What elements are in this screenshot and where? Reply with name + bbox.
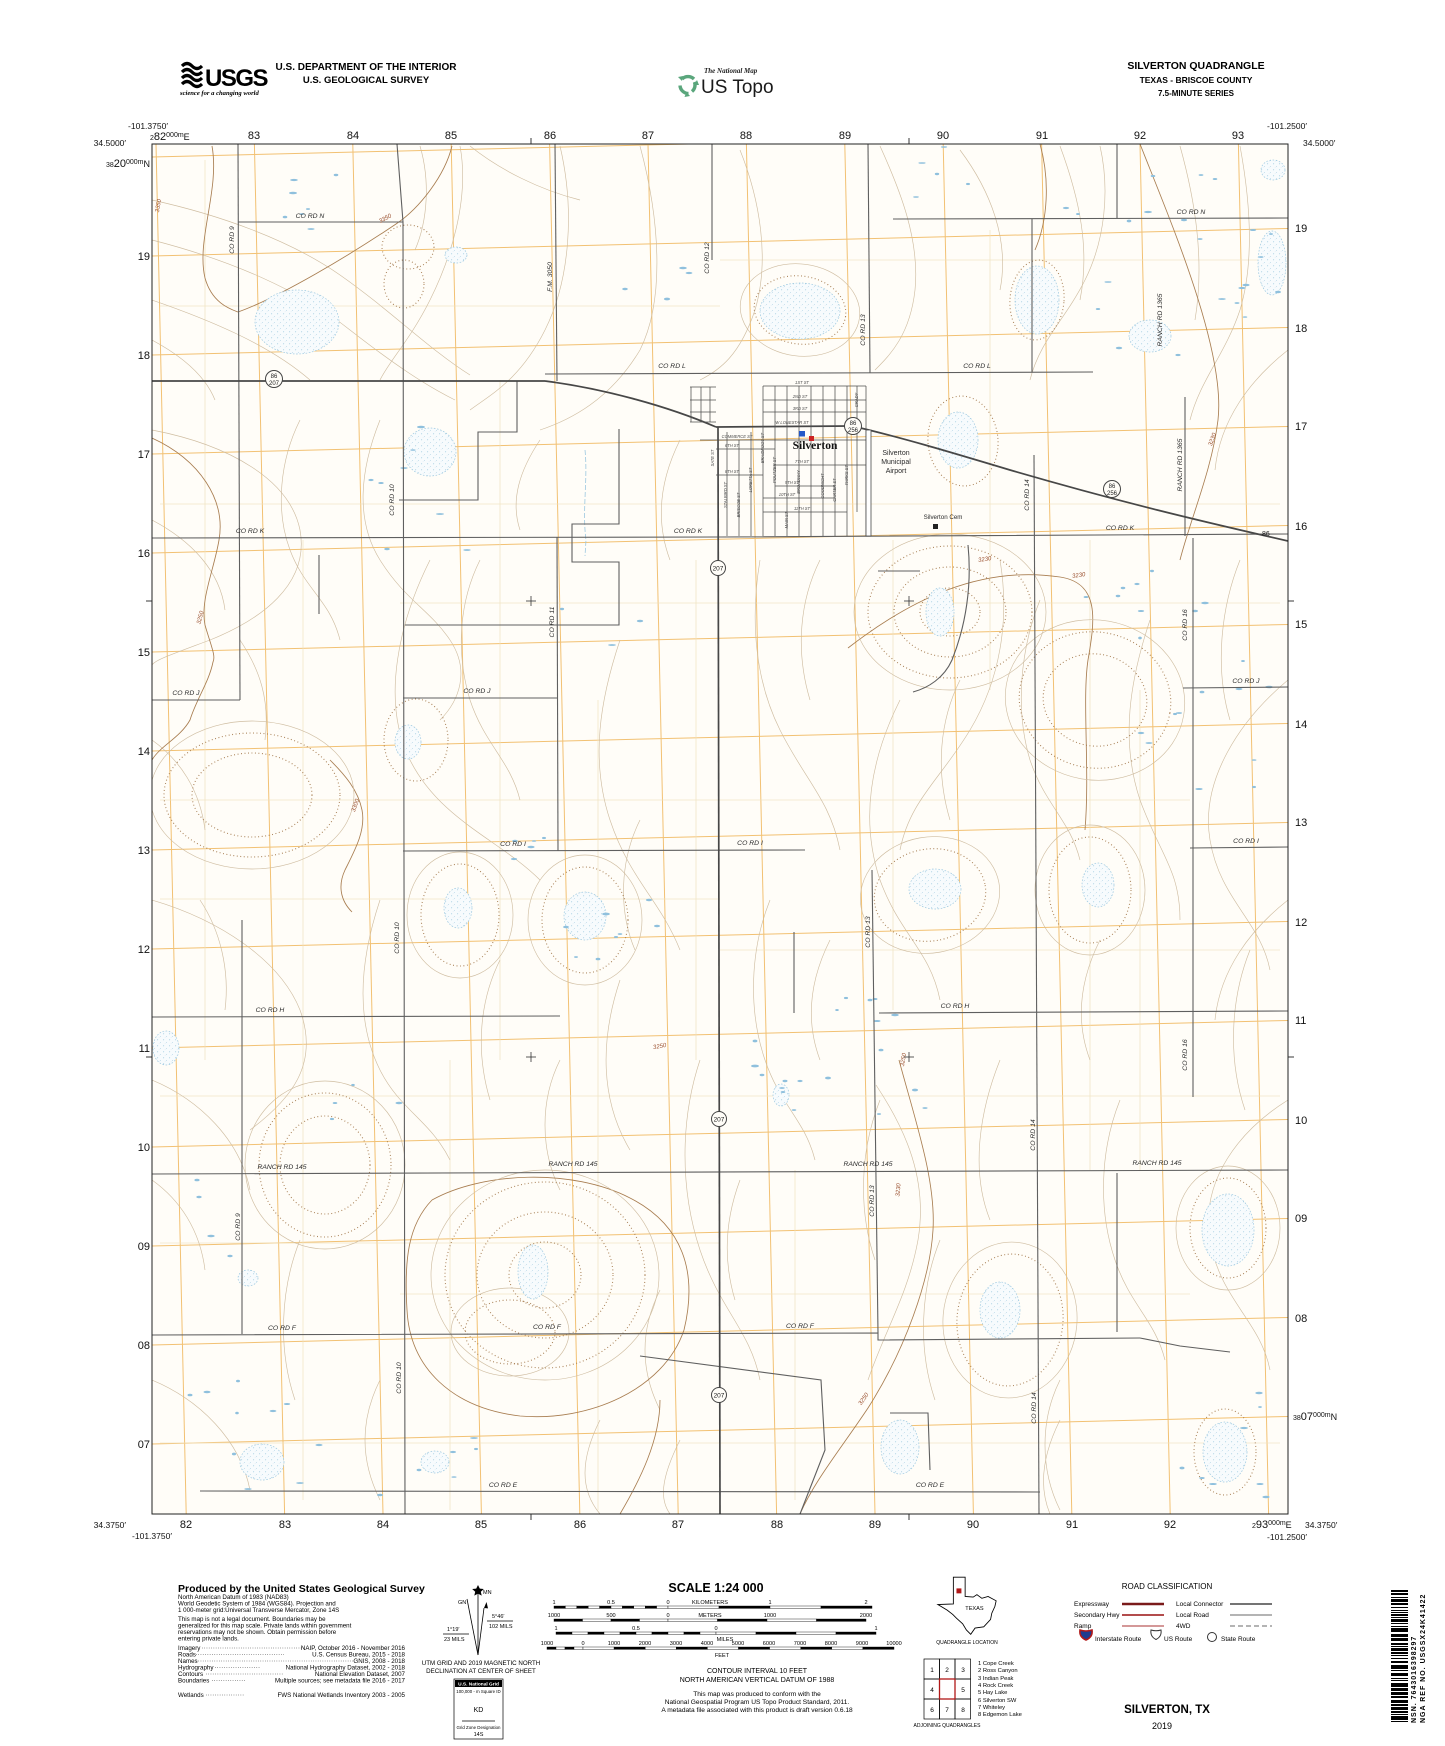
svg-text:12: 12 [1295,917,1307,929]
svg-text:METERS: METERS [698,1613,722,1619]
svg-text:4WD: 4WD [1176,1623,1191,1630]
svg-text:84: 84 [347,130,359,142]
svg-text:CARTER ST: CARTER ST [832,478,837,502]
svg-text:15: 15 [1295,619,1307,631]
svg-text:5°46′: 5°46′ [492,1614,504,1620]
svg-text:0.5: 0.5 [607,1600,615,1606]
svg-text:85: 85 [475,1519,487,1531]
svg-text:19: 19 [1295,223,1307,235]
svg-text:CO RD 9: CO RD 9 [229,226,236,254]
svg-text:RANCH RD 145: RANCH RD 145 [548,1161,597,1168]
svg-text:UTM GRID AND 2019 MAGNETIC NOR: UTM GRID AND 2019 MAGNETIC NORTH [422,1660,541,1667]
svg-text:ROAD CLASSIFICATION: ROAD CLASSIFICATION [1122,1582,1213,1591]
svg-text:83: 83 [279,1519,291,1531]
svg-text:90: 90 [967,1519,979,1531]
svg-text:11: 11 [1295,1015,1306,1027]
svg-text:34.3750′: 34.3750′ [1305,1520,1338,1530]
svg-text:CO RD I: CO RD I [500,841,526,848]
svg-text:BROADWAY: BROADWAY [796,470,801,494]
svg-text:12: 12 [138,944,150,956]
svg-text:PARKS ST: PARKS ST [844,465,849,485]
svg-text:-101.3750′: -101.3750′ [128,121,168,131]
svg-text:3RD ST: 3RD ST [793,406,808,411]
svg-text:CO RD 14: CO RD 14 [1024,479,1031,511]
svg-text:08: 08 [1295,1313,1307,1325]
svg-text:CO RD K: CO RD K [674,528,703,535]
svg-text:STALBIRD ST: STALBIRD ST [723,481,728,508]
svg-text:09: 09 [1295,1213,1307,1225]
svg-text:1°19′: 1°19′ [447,1627,459,1633]
svg-text:5 Hay Lake: 5 Hay Lake [978,1690,1007,1696]
svg-text:2: 2 [864,1600,867,1606]
svg-text:Airport: Airport [886,468,907,475]
svg-text:10TH ST: 10TH ST [779,492,796,497]
svg-text:Wetlands: Wetlands [178,1692,204,1699]
svg-text:86: 86 [574,1519,586,1531]
svg-text:14S: 14S [474,1732,484,1738]
svg-text:256: 256 [848,428,859,434]
svg-text:3000: 3000 [670,1641,682,1647]
svg-text:CO RD 11: CO RD 11 [549,606,556,637]
svg-text:CO RD 16: CO RD 16 [1182,1039,1189,1071]
svg-text:CO RD E: CO RD E [916,1482,945,1489]
svg-text:6000: 6000 [763,1641,775,1647]
svg-text:0: 0 [714,1626,717,1632]
svg-text:CO RD J: CO RD J [1232,678,1260,685]
svg-text:86: 86 [1262,531,1270,538]
svg-text:CO RD L: CO RD L [658,363,686,370]
svg-text:MN: MN [483,1590,492,1596]
svg-text:State Route: State Route [1221,1636,1256,1643]
svg-text:Multiple sources; see metad: Multiple sources; see metadata file 2016… [275,1678,406,1685]
svg-text:0: 0 [666,1613,669,1619]
svg-text:83: 83 [248,130,260,142]
svg-text:SILVERTON QUADRANGLE: SILVERTON QUADRANGLE [1127,60,1264,72]
svg-text:BRISCOE ST: BRISCOE ST [736,492,741,517]
svg-text:This map was produced to confo: This map was produced to conform with th… [693,1691,821,1698]
svg-text:RANCH RD 145: RANCH RD 145 [843,1161,892,1168]
svg-text:93: 93 [1232,130,1244,142]
svg-text:SCALE 1:24 000: SCALE 1:24 000 [668,1581,763,1595]
svg-text:CO RD K: CO RD K [1106,525,1135,532]
svg-text:FEET: FEET [715,1653,730,1659]
svg-text:6: 6 [930,1707,934,1714]
svg-text:16: 16 [1295,521,1307,533]
svg-text:5000: 5000 [732,1641,744,1647]
svg-text:Municipal: Municipal [881,459,911,466]
svg-text:16: 16 [138,548,150,560]
svg-text:4: 4 [930,1687,934,1694]
svg-text:CONTOUR INTERVAL 10 FEET: CONTOUR INTERVAL 10 FEET [707,1668,808,1675]
svg-text:9000: 9000 [856,1641,868,1647]
svg-text:0.5: 0.5 [632,1626,640,1632]
svg-text:CO RD 14: CO RD 14 [1030,1119,1037,1151]
svg-text:8000: 8000 [825,1641,837,1647]
svg-text:A metadata file associated wit: A metadata file associated with this pro… [661,1707,853,1714]
svg-text:CO RD 14: CO RD 14 [1031,1392,1038,1424]
svg-text:2ND ST: 2ND ST [792,394,808,399]
svg-text:17: 17 [1295,421,1307,433]
svg-text:8: 8 [961,1707,965,1714]
svg-text:RANCH RD 145: RANCH RD 145 [257,1164,306,1171]
svg-text:4000: 4000 [701,1641,713,1647]
svg-text:207: 207 [714,1392,725,1399]
svg-text:09: 09 [138,1241,150,1253]
svg-text:18: 18 [138,350,150,362]
svg-text:CO RD N: CO RD N [1177,209,1206,216]
svg-text:102 MILS: 102 MILS [489,1624,513,1630]
svg-text:1000: 1000 [541,1641,553,1647]
svg-text:86: 86 [544,130,556,142]
svg-text:National Geospatial Program US: National Geospatial Program US Topo Prod… [665,1699,850,1706]
svg-text:entering private lands.: entering private lands. [178,1636,239,1643]
svg-text:CO RD I: CO RD I [737,840,763,847]
svg-text:QUADRANGLE LOCATION: QUADRANGLE LOCATION [936,1640,998,1646]
svg-text:CO RD 13: CO RD 13 [860,314,867,346]
svg-text:207: 207 [269,381,280,387]
svg-text:CO RD 10: CO RD 10 [389,484,396,516]
svg-text:CO RD 13: CO RD 13 [865,916,872,948]
svg-text:CO RD J: CO RD J [172,690,200,697]
svg-text:US Route: US Route [1164,1636,1193,1643]
svg-text:NGA REF NO. USGSX24K41422: NGA REF NO. USGSX24K41422 [1420,1594,1427,1723]
svg-text:LORETTA ST: LORETTA ST [748,467,753,492]
svg-text:1 000-meter grid:Universal Tra: 1 000-meter grid:Universal Transverse Me… [178,1607,339,1614]
svg-text:13: 13 [138,845,150,857]
svg-text:U.S. DEPARTMENT OF THE INTERIO: U.S. DEPARTMENT OF THE INTERIOR [276,62,458,73]
svg-text:NORTH AMERICAN VERTICAL DATUM: NORTH AMERICAN VERTICAL DATUM OF 1988 [680,1677,835,1684]
svg-text:1000: 1000 [548,1613,560,1619]
svg-text:Boundaries: Boundaries [178,1678,209,1685]
svg-text:CO RD F: CO RD F [786,1323,815,1330]
svg-text:2 Ross Canyon: 2 Ross Canyon [978,1668,1018,1674]
svg-text:1 Cope Creek: 1 Cope Creek [978,1661,1014,1667]
svg-text:10000: 10000 [886,1641,902,1647]
svg-text:207: 207 [714,1116,725,1123]
svg-text:The National Map: The National Map [704,67,758,75]
svg-text:GOODNIGHT: GOODNIGHT [820,473,825,499]
svg-text:RANCH RD 1365: RANCH RD 1365 [1157,293,1164,346]
svg-text:1: 1 [554,1626,557,1632]
svg-text:CO RD 13: CO RD 13 [869,1185,876,1217]
svg-text:82: 82 [180,1519,192,1531]
svg-text:1000: 1000 [764,1613,776,1619]
svg-text:8TH ST: 8TH ST [725,469,740,474]
svg-text:CO RD J: CO RD J [463,688,491,695]
svg-text:RANCH RD 145: RANCH RD 145 [1132,1160,1181,1167]
svg-text:1000: 1000 [608,1641,620,1647]
svg-text:Ramp: Ramp [1074,1623,1092,1630]
svg-text:-101.2500′: -101.2500′ [1267,1532,1307,1542]
svg-text:23 MILS: 23 MILS [444,1637,465,1643]
svg-text:0: 0 [666,1600,669,1606]
svg-text:1ST ST: 1ST ST [795,380,809,385]
svg-text:CO RD F: CO RD F [268,1325,297,1332]
svg-text:CO RD L: CO RD L [963,363,991,370]
svg-text:6 Silverton SW: 6 Silverton SW [978,1698,1017,1704]
svg-text:34.5000′: 34.5000′ [1303,138,1336,148]
svg-text:POUTZER ST: POUTZER ST [772,457,777,483]
svg-text:91: 91 [1036,130,1048,142]
svg-text:BRAIDFOOT ST: BRAIDFOOT ST [760,432,765,463]
svg-text:100,000 - m Square ID: 100,000 - m Square ID [456,1689,500,1694]
svg-text:2019: 2019 [1152,1721,1172,1731]
svg-text:8 Edgemon Lake: 8 Edgemon Lake [978,1712,1022,1718]
svg-text:TEXAS - BRISCOE COUNTY: TEXAS - BRISCOE COUNTY [1140,75,1253,85]
svg-text:86: 86 [271,374,278,380]
svg-text:Silverton: Silverton [882,450,909,457]
svg-text:CO RD 16: CO RD 16 [1182,609,1189,641]
svg-text:1: 1 [552,1600,555,1606]
svg-text:85: 85 [445,130,457,142]
svg-text:14: 14 [1295,719,1307,731]
svg-text:3 Indian Peak: 3 Indian Peak [978,1676,1014,1682]
svg-text:U.S. GEOLOGICAL SURVEY: U.S. GEOLOGICAL SURVEY [303,75,430,86]
svg-text:Silverton: Silverton [793,440,838,452]
svg-text:Silverton Cem: Silverton Cem [924,514,963,521]
svg-text:Interstate Route: Interstate Route [1095,1636,1142,1643]
svg-text:CO RD K: CO RD K [236,528,265,535]
svg-text:256: 256 [1107,491,1118,497]
svg-text:F.M. 3050: F.M. 3050 [547,262,554,292]
svg-text:Local Road: Local Road [1176,1612,1209,1619]
svg-text:88: 88 [771,1519,783,1531]
svg-text:NSN. 7643016398297: NSN. 7643016398297 [1411,1636,1418,1723]
svg-text:SATE ST: SATE ST [710,449,715,466]
svg-text:19: 19 [138,251,150,263]
svg-text:86: 86 [850,421,857,427]
svg-text:88: 88 [740,130,752,142]
svg-text:5: 5 [961,1687,965,1694]
svg-text:DECLINATION AT CENTER OF SHEET: DECLINATION AT CENTER OF SHEET [426,1668,536,1675]
svg-text:92: 92 [1134,130,1146,142]
svg-text:07: 07 [138,1439,150,1451]
svg-text:15: 15 [138,647,150,659]
svg-text:7: 7 [945,1707,949,1714]
svg-text:science for a changing world: science for a changing world [179,90,259,97]
svg-text:CO RD I: CO RD I [1233,838,1259,845]
svg-text:10: 10 [138,1142,150,1154]
svg-text:13: 13 [1295,817,1307,829]
svg-text:USGS: USGS [205,65,269,92]
svg-text:500: 500 [606,1613,615,1619]
svg-text:92: 92 [1164,1519,1176,1531]
svg-text:08: 08 [138,1340,150,1352]
svg-text:6TH ST: 6TH ST [725,443,740,448]
svg-text:3: 3 [961,1667,965,1674]
svg-text:U.S. National Grid: U.S. National Grid [458,1682,499,1688]
svg-text:COMMERCE ST: COMMERCE ST [722,434,753,439]
svg-text:KILOMETERS: KILOMETERS [692,1600,728,1606]
svg-text:Local Connector: Local Connector [1176,1601,1224,1608]
svg-text:87: 87 [672,1519,684,1531]
svg-text:84: 84 [377,1519,389,1531]
svg-text:207: 207 [713,565,724,572]
svg-text:2: 2 [945,1667,949,1674]
svg-text:Grid Zone Designation: Grid Zone Designation [457,1725,501,1730]
svg-text:CO RD N: CO RD N [296,213,325,220]
svg-text:CO RD 10: CO RD 10 [396,1362,403,1394]
svg-text:10: 10 [1295,1115,1307,1127]
svg-text:CO RD 10: CO RD 10 [394,922,401,954]
svg-text:34.5000′: 34.5000′ [94,138,127,148]
svg-text:7000: 7000 [794,1641,806,1647]
svg-text:TEXAS: TEXAS [965,1606,984,1612]
svg-text:2000: 2000 [639,1641,651,1647]
svg-text:17: 17 [138,449,150,461]
svg-text:RANCH RD 1365: RANCH RD 1365 [1177,438,1184,491]
svg-text:KD: KD [474,1707,484,1714]
svg-text:GN: GN [458,1600,466,1606]
svg-text:CO RD 9: CO RD 9 [235,1213,242,1241]
svg-text:Expressway: Expressway [1074,1601,1110,1608]
svg-text:1: 1 [768,1600,771,1606]
svg-text:3230: 3230 [895,1182,902,1196]
svg-text:CO RD H: CO RD H [941,1003,970,1010]
svg-text:CO RD H: CO RD H [256,1007,285,1014]
svg-text:91: 91 [1066,1519,1078,1531]
svg-text:2000: 2000 [860,1613,872,1619]
svg-text:89: 89 [839,130,851,142]
svg-text:SILVERTON, TX: SILVERTON, TX [1124,1704,1210,1716]
svg-text:4 Rock Creek: 4 Rock Creek [978,1683,1013,1689]
svg-text:MAIN ST: MAIN ST [784,511,789,528]
svg-text:11TH ST: 11TH ST [794,506,811,511]
svg-text:11: 11 [139,1043,150,1055]
svg-text:90: 90 [937,130,949,142]
svg-text:7.5-MINUTE SERIES: 7.5-MINUTE SERIES [1158,89,1235,98]
svg-text:0: 0 [581,1641,584,1647]
svg-text:89: 89 [869,1519,881,1531]
svg-text:1: 1 [874,1626,877,1632]
svg-text:18: 18 [1295,323,1307,335]
svg-text:CO RD 12: CO RD 12 [704,242,711,274]
svg-text:1: 1 [930,1667,934,1674]
svg-text:-101.2500′: -101.2500′ [1267,121,1307,131]
svg-text:US Topo: US Topo [701,77,774,98]
svg-text:7 Whiteley: 7 Whiteley [978,1705,1005,1711]
svg-text:86: 86 [1109,484,1116,490]
svg-text:GRADY: GRADY [854,392,859,407]
svg-text:CO RD E: CO RD E [489,1482,518,1489]
svg-text:CO RD F: CO RD F [533,1324,562,1331]
svg-text:87: 87 [642,130,654,142]
svg-text:ADJOINING QUADRANGLES: ADJOINING QUADRANGLES [914,1723,982,1729]
svg-text:14: 14 [138,746,150,758]
svg-text:7TH ST: 7TH ST [795,459,810,464]
svg-text:Secondary Hwy: Secondary Hwy [1074,1612,1120,1619]
svg-text:W LONESTAR ST: W LONESTAR ST [775,420,809,425]
svg-text:-101.3750′: -101.3750′ [132,1531,172,1541]
svg-text:FWS National Wetlands In: FWS National Wetlands Inventory 2003 - 2… [278,1692,406,1699]
svg-text:34.3750′: 34.3750′ [94,1520,127,1530]
